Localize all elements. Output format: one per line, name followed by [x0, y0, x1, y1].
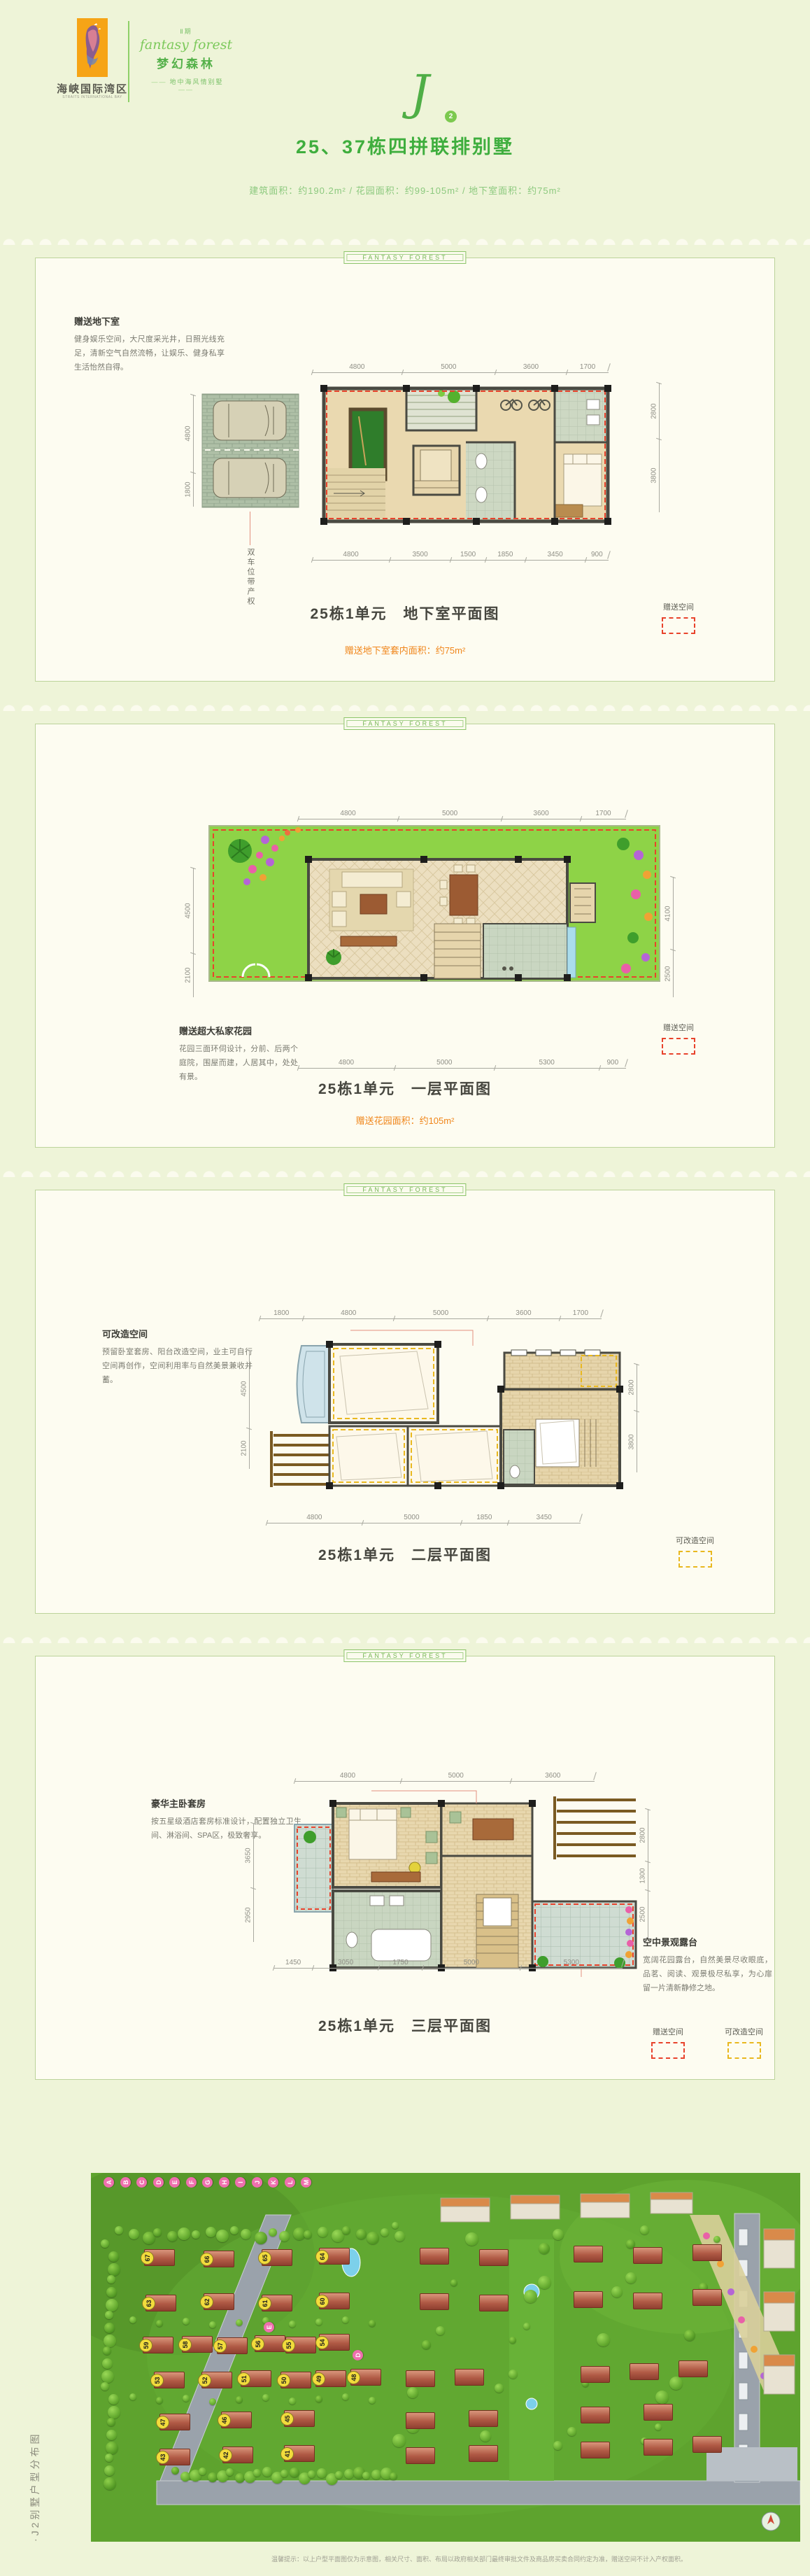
dim-segment: 3450	[525, 551, 585, 561]
dims-right: 28003800	[627, 1364, 637, 1472]
scallop-border	[0, 1633, 810, 1643]
dim-segment: 3600	[511, 1772, 595, 1782]
tree	[255, 2232, 267, 2244]
villa-number-badge: 55	[282, 2339, 295, 2352]
gift-swatch	[662, 617, 695, 634]
dim-segment: 900	[585, 551, 609, 561]
tree	[289, 2398, 296, 2405]
villa-house: 50	[280, 2372, 311, 2388]
dim-value: 3600	[523, 363, 539, 371]
dim-segment: 1700	[560, 1309, 602, 1319]
villa-number-badge: 41	[280, 2447, 294, 2461]
tree	[524, 2290, 537, 2303]
legend-gift: 赠送空间	[651, 2026, 685, 2059]
dim-segment: 4500	[184, 868, 194, 953]
villa-house	[574, 2246, 603, 2262]
tree	[342, 2226, 350, 2234]
tree	[235, 2473, 245, 2483]
villa-house	[692, 2436, 722, 2453]
tree	[156, 2320, 163, 2327]
dim-segment: 3800	[627, 1411, 637, 1472]
dim-value: 3600	[516, 1309, 531, 1317]
dim-segment: 1500	[450, 551, 485, 561]
dim-segment: 5000	[398, 810, 502, 819]
villa-number-badge: 58	[178, 2338, 192, 2351]
tree	[108, 2251, 119, 2262]
dim-segment: 5000	[362, 1514, 461, 1523]
villa-number-badge: 66	[200, 2253, 213, 2266]
gift-swatch	[651, 2042, 685, 2059]
project-name-cn: 梦幻森林	[138, 54, 234, 71]
panel-second-floor: FANTASY FOREST 可改造空间 预留卧室套房、阳台改造空间，业主可自行…	[35, 1190, 775, 1614]
plan-caption: 25栋1单元 二层平面图	[36, 1544, 774, 1565]
tree	[156, 2397, 163, 2404]
dim-value: 3800	[651, 467, 658, 483]
tree	[655, 2391, 669, 2404]
tree	[344, 2469, 354, 2479]
plan-caption: 25栋1单元 一层平面图	[36, 1078, 774, 1099]
villa-house	[420, 2248, 449, 2265]
dim-segment: 2800	[650, 383, 660, 439]
tree	[129, 2229, 139, 2239]
tree	[104, 2323, 115, 2333]
tree	[509, 2370, 518, 2379]
dim-value: 5000	[441, 363, 456, 371]
panel-ribbon: FANTASY FOREST	[343, 717, 466, 730]
tree	[407, 2387, 418, 2398]
villa-house	[644, 2404, 673, 2421]
tree	[289, 2321, 296, 2328]
dim-segment: 3600	[495, 363, 567, 373]
tree	[183, 2318, 190, 2325]
villa-number-badge: 64	[315, 2250, 329, 2263]
tree	[105, 2311, 113, 2319]
dim-value: 3800	[628, 1434, 636, 1449]
dim-segment: 4800	[303, 1309, 394, 1319]
row-letter-badge: D	[153, 2177, 164, 2188]
villa-number-badge: 57	[213, 2339, 227, 2353]
dim-segment: 1750	[378, 1959, 422, 1969]
dim-segment: 1800	[260, 1309, 303, 1319]
tree	[480, 2430, 491, 2442]
dim-value: 3450	[547, 551, 562, 558]
villa-number-badge: 46	[218, 2414, 231, 2427]
dim-value: 4800	[343, 551, 358, 558]
dim-value: 1500	[460, 551, 476, 558]
villa-house: 42	[222, 2447, 253, 2463]
row-letter-badge: H	[219, 2177, 229, 2188]
tree	[392, 2222, 399, 2229]
row-letter-badge: I	[235, 2177, 246, 2188]
row-letter-badge: D	[353, 2350, 363, 2360]
dim-value: 4500	[185, 903, 192, 918]
tree	[269, 2228, 277, 2237]
villa-house: 63	[145, 2295, 176, 2311]
gift-area-note: 赠送地下室套内面积：约75m²	[36, 643, 774, 656]
tree	[105, 2454, 113, 2462]
tree	[102, 2358, 113, 2369]
tree	[669, 2377, 683, 2390]
dim-segment: 3450	[508, 1514, 581, 1523]
villa-house: 55	[285, 2337, 316, 2353]
page-title: 25、37栋四拼联排别墅	[0, 132, 810, 159]
villa-number-badge: 42	[219, 2449, 232, 2462]
dim-value: 5000	[436, 1059, 452, 1067]
villa-house	[479, 2249, 509, 2266]
dim-value: 2500	[665, 966, 672, 981]
villa-house	[581, 2407, 610, 2423]
tree	[640, 2225, 649, 2234]
dim-value: 1700	[573, 1309, 588, 1317]
project-script-title: fantasy forest	[138, 37, 234, 52]
tree	[107, 2418, 115, 2426]
row-letter-badge: E	[264, 2322, 274, 2332]
villa-house: 60	[319, 2293, 350, 2309]
tree	[465, 2232, 478, 2246]
panel-ribbon: FANTASY FOREST	[343, 251, 466, 264]
dim-segment: 4800	[298, 810, 398, 819]
dims-top: 4800500036001700	[312, 363, 609, 373]
dim-segment: 1300	[639, 1861, 648, 1890]
tree	[342, 2393, 349, 2400]
dim-value: 1450	[285, 1959, 301, 1966]
villa-number-badge: 53	[150, 2374, 164, 2387]
tree	[183, 2395, 190, 2402]
dim-value: 5000	[404, 1514, 419, 1521]
dim-value: 3500	[412, 551, 427, 558]
tree	[180, 2472, 190, 2482]
villa-number-badge: 56	[251, 2337, 264, 2351]
dim-segment: 5000	[395, 1059, 495, 1069]
dim-value: 1800	[273, 1309, 289, 1317]
project-logo	[77, 18, 108, 77]
dims-top: 4800500036001700	[298, 810, 627, 819]
tree	[262, 2467, 272, 2477]
tree	[280, 2470, 288, 2477]
dim-segment: 900	[599, 1059, 626, 1069]
tree	[192, 2230, 200, 2239]
tree	[216, 2230, 229, 2242]
tree	[104, 2335, 116, 2347]
dim-value: 2950	[245, 1907, 253, 1922]
tree	[369, 2397, 376, 2404]
villa-house	[574, 2291, 603, 2308]
dims-bottom: 48003500150018503450900	[312, 551, 609, 561]
dim-segment: 3600	[488, 1309, 560, 1319]
tree	[538, 2276, 551, 2289]
dim-value: 1700	[595, 810, 611, 817]
villa-house	[581, 2366, 610, 2383]
tree	[318, 2227, 328, 2237]
dim-value: 900	[591, 551, 603, 558]
dim-segment: 2500	[664, 950, 674, 997]
tree	[253, 2469, 261, 2477]
villa-house	[630, 2363, 659, 2380]
tree	[304, 2230, 312, 2239]
panel-ribbon: FANTASY FOREST	[343, 1183, 466, 1196]
tree	[236, 2319, 243, 2326]
tree	[392, 2434, 406, 2447]
tree	[553, 2441, 562, 2450]
gift-area-note: 赠送花园面积：约105m²	[36, 1113, 774, 1127]
villa-house	[479, 2295, 509, 2311]
villa-house: 43	[159, 2449, 190, 2465]
villa-house: 49	[315, 2370, 346, 2387]
dim-segment: 4500	[240, 1350, 250, 1428]
dim-segment: 3650	[244, 1823, 254, 1888]
villa-house: 54	[319, 2334, 350, 2351]
dim-value: 4800	[341, 1309, 356, 1317]
dim-value: 4800	[306, 1514, 322, 1521]
third-floor-plan	[267, 1789, 637, 1982]
tree	[101, 2239, 109, 2248]
brand-name-cn: 海峡国际湾区	[50, 81, 134, 96]
dim-value: 4800	[185, 426, 192, 442]
note-basement: 赠送地下室 健身娱乐空间，大尺度采光井，日照光线充足，清新空气自然流畅，让娱乐、…	[74, 314, 225, 374]
parking-plan	[198, 391, 303, 514]
scallop-border	[0, 235, 810, 245]
dim-value: 1750	[392, 1959, 408, 1966]
dim-value: 4800	[339, 1059, 354, 1067]
dim-value: 900	[606, 1059, 618, 1067]
villa-house: 53	[154, 2372, 185, 2388]
tree	[209, 2398, 216, 2405]
villa-house: 59	[143, 2337, 173, 2353]
tree	[335, 2471, 343, 2479]
parking-label: 双车位带产权	[245, 548, 256, 607]
tree	[226, 2468, 234, 2476]
legend-convertible: 可改造空间	[725, 2026, 763, 2059]
panel-first-floor: FANTASY FOREST 4800500036001700 45002100	[35, 724, 775, 1148]
dim-segment: 1850	[461, 1514, 507, 1523]
villa-house: 52	[201, 2372, 232, 2388]
dim-value: 3600	[533, 810, 548, 817]
dim-value: 5300	[539, 1059, 555, 1067]
leader-line	[250, 512, 250, 545]
dim-value: 1850	[497, 551, 513, 558]
tree	[167, 2231, 178, 2241]
villa-house: 65	[262, 2249, 292, 2266]
tree	[713, 2236, 720, 2243]
tree	[101, 2370, 114, 2383]
dim-value: 3650	[245, 1847, 253, 1863]
tree	[611, 2286, 623, 2297]
dim-segment: 4800	[298, 1059, 395, 1069]
tree	[115, 2226, 123, 2234]
villa-house	[420, 2293, 449, 2310]
dims-left: 45002100	[184, 868, 194, 997]
villa-house: 62	[204, 2293, 234, 2310]
tree	[362, 2472, 370, 2479]
dim-value: 5000	[448, 1772, 464, 1780]
dims-right: 28003800	[650, 383, 660, 512]
tree	[106, 2287, 117, 2297]
dim-segment: 5300	[495, 1059, 599, 1069]
tree	[236, 2396, 243, 2403]
brand-name-en: STRAITS INTERNATIONAL BAY	[46, 95, 138, 99]
panel-third-floor: FANTASY FOREST 豪华主卧套房 按五星级酒店套房标准设计，配置独立卫…	[35, 1656, 775, 2080]
tree	[209, 2321, 216, 2328]
dim-segment: 4800	[267, 1514, 362, 1523]
villa-house	[581, 2442, 610, 2458]
villa-number-badge: 48	[347, 2371, 360, 2384]
dim-segment: 5300	[520, 1959, 623, 1969]
dims-bottom: 14503050175050005300	[273, 1959, 623, 1969]
dims-left: 48001800	[184, 395, 194, 507]
dim-value: 2800	[651, 403, 658, 418]
villa-house: 61	[262, 2295, 292, 2311]
villa-house: 45	[284, 2410, 315, 2427]
dim-segment: 3050	[313, 1959, 378, 1969]
tree	[308, 2470, 315, 2478]
row-letter-badge: C	[136, 2177, 147, 2188]
convertible-swatch	[727, 2042, 761, 2059]
villa-number-badge: 52	[198, 2374, 211, 2387]
dim-segment: 3800	[650, 439, 660, 512]
dim-segment: 5000	[401, 1772, 511, 1782]
tree	[495, 2384, 504, 2393]
dims-left: 36502950	[244, 1823, 254, 1942]
note-garden: 赠送超大私家花园 花园三面环伺设计，分前、后两个庭院，围屋而建，人居其中，处处有…	[179, 1024, 298, 1084]
villa-house	[633, 2247, 662, 2264]
villa-number-badge: 45	[280, 2412, 294, 2426]
tree	[356, 2229, 367, 2239]
tree	[262, 2394, 269, 2401]
scallop-border	[0, 1167, 810, 1177]
villa-number-badge: 54	[315, 2336, 329, 2349]
dim-value: 1850	[476, 1514, 492, 1521]
tree	[106, 2442, 118, 2454]
dims-bottom: 480050005300900	[298, 1059, 627, 1069]
row-letter-badge: A	[104, 2177, 114, 2188]
tree	[153, 2228, 162, 2237]
map-side-label: ·J2别墅户型分布图	[28, 2432, 42, 2542]
dim-segment: 5000	[422, 1959, 520, 1969]
dims-top: 18004800500036001700	[260, 1309, 602, 1319]
tree	[171, 2467, 179, 2475]
dim-value: 5000	[442, 810, 457, 817]
site-plan-map: 6766656463626160595857565554535251504948…	[91, 2173, 800, 2542]
tree	[597, 2333, 610, 2346]
dim-value: 3050	[338, 1959, 353, 1966]
villa-house	[692, 2244, 722, 2261]
dims-top: 480050003600	[294, 1772, 595, 1782]
tree	[509, 2337, 516, 2344]
dims-bottom: 4800500018503450	[267, 1514, 581, 1523]
legend-gift: 赠送空间	[662, 1022, 695, 1055]
brochure-page: 海峡国际湾区 STRAITS INTERNATIONAL BAY Ⅱ期 fant…	[0, 0, 810, 2576]
dim-value: 4800	[340, 810, 355, 817]
tree	[104, 2477, 116, 2490]
villa-number-badge: 63	[142, 2297, 155, 2310]
tree	[395, 2231, 405, 2241]
row-letter-badge: G	[202, 2177, 213, 2188]
tree	[539, 2243, 550, 2254]
dim-value: 5300	[564, 1959, 579, 1966]
unit-monogram-badge: 2	[445, 111, 457, 122]
tree	[206, 2227, 216, 2237]
page-subtitle: 建筑面积：约190.2m² / 花园面积：约99-105m² / 地下室面积：约…	[0, 183, 810, 197]
tree	[523, 2323, 530, 2330]
dim-segment: 4100	[664, 877, 674, 950]
villa-house: 47	[159, 2414, 190, 2430]
legend-convertible: 可改造空间	[676, 1535, 714, 1568]
dim-segment: 1700	[567, 363, 609, 373]
dim-segment: 4800	[294, 1772, 401, 1782]
dim-value: 3450	[537, 1514, 552, 1521]
dim-value: 2100	[241, 1441, 248, 1456]
dim-segment: 4800	[312, 551, 390, 561]
villa-house	[644, 2439, 673, 2456]
tree	[279, 2231, 290, 2241]
dim-value: 4500	[241, 1381, 248, 1397]
dims-right: 41002500	[664, 877, 674, 997]
villa-number-badge: 65	[258, 2251, 271, 2265]
dim-value: 5000	[464, 1959, 479, 1966]
tree	[315, 2395, 322, 2402]
tree	[684, 2330, 695, 2341]
tree	[290, 2468, 299, 2477]
panel-basement: FANTASY FOREST 赠送地下室 健身娱乐空间，大尺度采光井，日照光线充…	[35, 258, 775, 682]
tree	[342, 2316, 349, 2323]
villa-house	[678, 2360, 708, 2377]
dim-segment: 2800	[627, 1364, 637, 1411]
villa-number-badge: 49	[312, 2372, 325, 2386]
row-letter-badge: M	[301, 2177, 311, 2188]
dim-segment: 5000	[402, 363, 495, 373]
tree	[106, 2299, 118, 2311]
dim-value: 5000	[433, 1309, 448, 1317]
tree	[381, 2228, 389, 2237]
row-letter-badge: K	[268, 2177, 278, 2188]
villa-house	[406, 2447, 435, 2464]
row-letter-badge: F	[186, 2177, 197, 2188]
dim-value: 4100	[665, 906, 672, 921]
tree	[103, 2346, 111, 2355]
tree	[208, 2472, 218, 2482]
dim-segment: 3500	[390, 551, 450, 561]
tree	[104, 2465, 115, 2476]
tree	[369, 2320, 376, 2327]
villa-house	[469, 2445, 498, 2462]
dim-value: 2100	[185, 967, 192, 983]
dim-segment: 5000	[394, 1309, 488, 1319]
row-letter-badge: B	[120, 2177, 131, 2188]
villa-house	[455, 2369, 484, 2386]
dim-segment: 4800	[184, 395, 194, 472]
villa-number-badge: 50	[277, 2374, 290, 2387]
tree	[436, 2326, 445, 2335]
villa-number-badge: 60	[315, 2295, 329, 2308]
tree	[422, 2340, 431, 2349]
dim-segment: 2500	[639, 1890, 648, 1938]
header-project-block: Ⅱ期 fantasy forest 梦幻森林 地中海风情别墅	[138, 27, 234, 93]
villa-number-badge: 47	[156, 2416, 169, 2429]
dim-value: 1700	[580, 363, 595, 371]
map-overlay: 6766656463626160595857565554535251504948…	[91, 2173, 800, 2542]
tree	[108, 2406, 120, 2419]
tree	[567, 2427, 576, 2436]
tree	[101, 2382, 109, 2391]
tree	[450, 2279, 457, 2286]
villa-number-badge: 67	[141, 2251, 154, 2265]
convertible-swatch	[678, 1551, 712, 1568]
tree	[367, 2232, 379, 2244]
row-letter-badge: J	[252, 2177, 262, 2188]
villa-house: 66	[204, 2251, 234, 2267]
villa-house: 67	[144, 2249, 175, 2266]
tree	[371, 2470, 381, 2479]
